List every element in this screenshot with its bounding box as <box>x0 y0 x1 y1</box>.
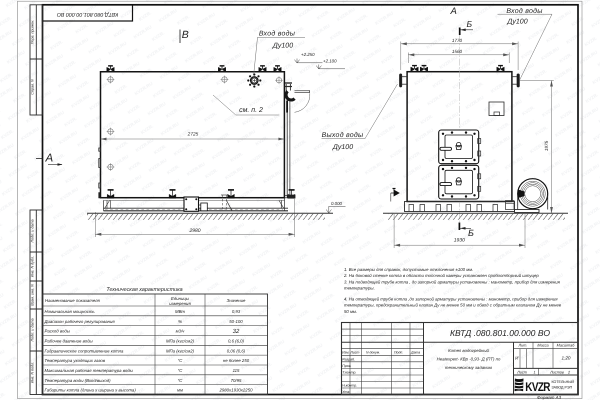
svg-text:Значение: Значение <box>227 298 246 303</box>
svg-text:мм: мм <box>177 388 183 393</box>
svg-text:2725: 2725 <box>187 131 199 137</box>
svg-text:МПа (кгс/см2): МПа (кгс/см2) <box>166 348 195 353</box>
svg-text:Ду100: Ду100 <box>506 18 527 25</box>
svg-text:ЗАВОД РЭП: ЗАВОД РЭП <box>552 386 573 390</box>
svg-text:115: 115 <box>233 368 240 373</box>
svg-text:4. На отводящей трубе котла ,д: 4. На отводящей трубе котла ,до запорной… <box>344 297 558 302</box>
svg-text:Разраб.: Разраб. <box>342 357 355 361</box>
svg-text:Гидравлическое сопротивление к: Гидравлическое сопротивление котла <box>45 348 125 353</box>
svg-text:температуры.: температуры. <box>344 286 375 291</box>
svg-text:Температура воды (Вход/выход): Температура воды (Вход/выход) <box>45 378 112 383</box>
svg-text:50-100: 50-100 <box>229 319 243 324</box>
svg-text:Максимальная рабочая температу: Максимальная рабочая температура воды <box>45 368 134 373</box>
svg-text:1560: 1560 <box>452 49 463 54</box>
svg-text:2980х1930х2250: 2980х1930х2250 <box>219 388 254 393</box>
svg-text:Н.контр.: Н.контр. <box>342 384 357 388</box>
svg-text:Номинальная мощность: Номинальная мощность <box>45 309 96 314</box>
svg-text:Наименование показателя: Наименование показателя <box>45 298 101 303</box>
svg-text:МВт: МВт <box>175 309 185 314</box>
svg-text:Габариты котла (длина х ширина: Габариты котла (длина х ширина х высота) <box>45 388 137 393</box>
svg-text:70/95: 70/95 <box>231 378 242 383</box>
svg-text:Дата: Дата <box>410 351 420 355</box>
svg-text:Б: Б <box>468 228 474 238</box>
svg-text:Инв. N дубл.: Инв. N дубл. <box>31 256 35 277</box>
svg-text:Лист: Лист <box>516 371 527 375</box>
svg-text:1: 1 <box>533 371 535 375</box>
svg-text:3. На подводящей трубе котла ,: 3. На подводящей трубе котла , до запорн… <box>344 279 561 284</box>
svg-text:м3/ч: м3/ч <box>176 329 186 334</box>
svg-text:Лит.: Лит. <box>518 344 528 348</box>
svg-text:0,93: 0,93 <box>232 309 241 314</box>
svg-text:Вход воды: Вход воды <box>506 7 543 15</box>
svg-text:Подп. и дата: Подп. и дата <box>31 318 35 341</box>
svg-text:1:20: 1:20 <box>562 356 571 361</box>
svg-text:см. п. 2: см. п. 2 <box>239 107 263 114</box>
svg-text:%: % <box>178 319 182 324</box>
svg-text:Утв.: Утв. <box>342 390 350 394</box>
svg-text:2980: 2980 <box>188 228 200 234</box>
svg-text:Диапазон рабочего регулировани: Диапазон рабочего регулирования <box>44 319 116 324</box>
svg-text:0,06 (0,6): 0,06 (0,6) <box>227 348 246 353</box>
svg-text:не более 250: не более 250 <box>223 358 250 363</box>
svg-text:А: А <box>450 6 457 17</box>
svg-text:Справ. N: Справ. N <box>31 79 35 95</box>
svg-text:KVZR: KVZR <box>525 380 550 394</box>
svg-text:Масштаб: Масштаб <box>557 344 576 348</box>
svg-text:МПа (кгс/см2): МПа (кгс/см2) <box>166 339 195 344</box>
svg-text:Инв. N подл.: Инв. N подл. <box>31 362 35 384</box>
svg-text:50 мм.: 50 мм. <box>344 309 357 314</box>
svg-text:КВТД.080.801.00.000 ВО: КВТД.080.801.00.000 ВО <box>56 11 118 17</box>
svg-text:Рабочее давление воды: Рабочее давление воды <box>45 339 94 344</box>
svg-text:Вход воды: Вход воды <box>259 30 296 38</box>
svg-text:техническому заданию: техническому заданию <box>445 365 493 370</box>
svg-text:N докум.: N докум. <box>366 351 380 355</box>
svg-text:32: 32 <box>233 328 240 335</box>
svg-text:КОТЕЛЬНЫЙ: КОТЕЛЬНЫЙ <box>552 379 575 384</box>
svg-text:1930: 1930 <box>454 238 465 244</box>
svg-text:Т.контр.: Т.контр. <box>342 371 356 375</box>
svg-text:Б: Б <box>467 19 473 29</box>
svg-text:температуры, предохранительный: температуры, предохранительный клапан Ду… <box>344 303 562 308</box>
svg-text:0.000: 0.000 <box>331 201 343 206</box>
svg-text:Расход воды: Расход воды <box>45 329 71 334</box>
svg-text:Температура уходящих газов: Температура уходящих газов <box>45 358 106 363</box>
svg-text:Heatexpert- КВр -0,93- Д (ПТ): Heatexpert- КВр -0,93- Д (ПТ) по <box>437 357 501 362</box>
svg-text:Ду100: Ду100 <box>332 144 353 151</box>
svg-text:Подп. и дата: Подп. и дата <box>31 219 35 242</box>
svg-text:А: А <box>45 153 54 165</box>
svg-text:В: В <box>182 29 189 41</box>
svg-text:Листов: Листов <box>549 371 564 375</box>
svg-text:Выход воды: Выход воды <box>322 131 364 139</box>
svg-text:Взам. инв. N: Взам. инв. N <box>31 284 35 306</box>
svg-text:Перв. примен.: Перв. примен. <box>31 20 35 45</box>
svg-text:+2.250: +2.250 <box>301 52 315 57</box>
svg-text:+2.100: +2.100 <box>323 58 337 63</box>
svg-text:1. Все размеры для справок, до: 1. Все размеры для справок, допустимые о… <box>344 267 473 272</box>
svg-text:Изм. Лист: Изм. Лист <box>342 351 360 355</box>
svg-text:Подп.: Подп. <box>394 351 403 355</box>
svg-text:Формат А3: Формат А3 <box>537 395 562 400</box>
svg-text:0,6 (6,0): 0,6 (6,0) <box>228 339 245 344</box>
svg-text:1975: 1975 <box>544 140 549 151</box>
svg-text:измерения: измерения <box>169 301 191 306</box>
svg-text:2. На боковой стенке котла в о: 2. На боковой стенке котла в области топ… <box>343 273 539 278</box>
svg-text:Масса: Масса <box>537 344 548 348</box>
svg-text:Ду100: Ду100 <box>272 43 293 50</box>
svg-text:1770: 1770 <box>452 38 463 43</box>
svg-text:Техническая характеристика: Техническая характеристика <box>106 287 182 293</box>
svg-text:Пров.: Пров. <box>342 364 351 368</box>
svg-text:Котел водогрейный: Котел водогрейный <box>448 348 489 353</box>
svg-text:КВТД .080.801.00.000 ВО: КВТД .080.801.00.000 ВО <box>450 328 550 338</box>
